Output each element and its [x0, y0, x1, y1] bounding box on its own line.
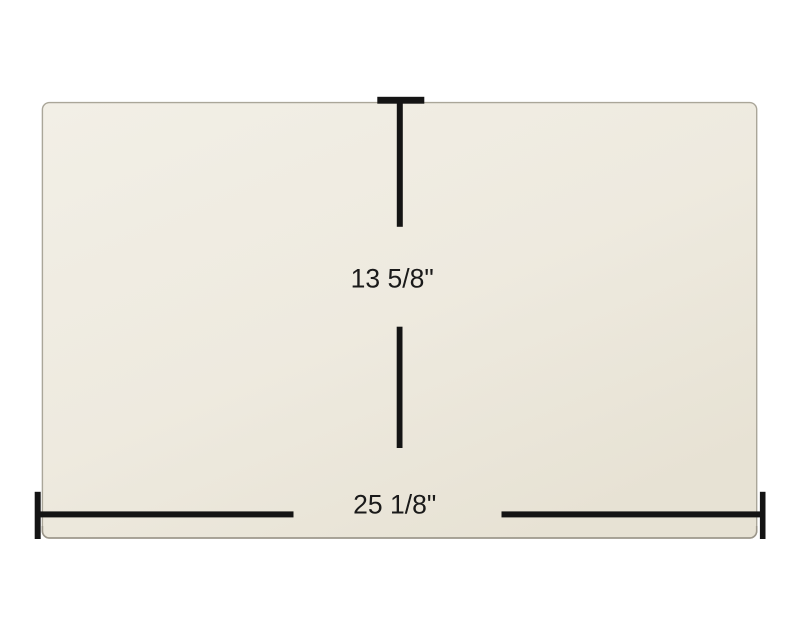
svg-text:25 1/8": 25 1/8": [353, 490, 436, 520]
svg-text:13 5/8": 13 5/8": [351, 263, 434, 293]
